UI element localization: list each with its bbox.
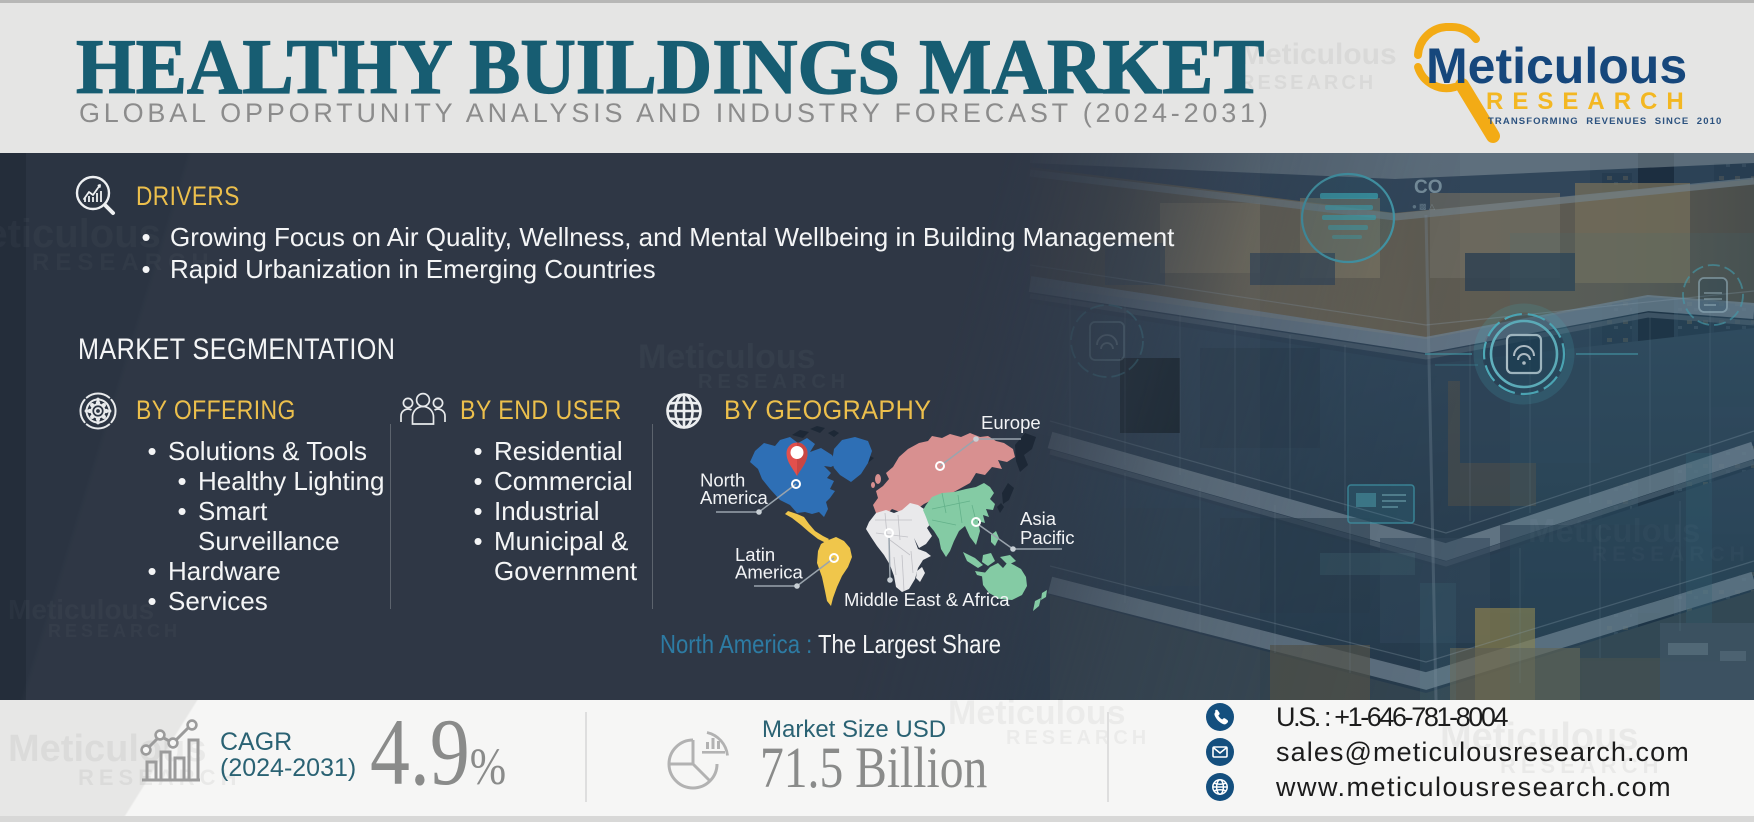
svg-text:America: America xyxy=(700,487,769,508)
svg-text:Pacific: Pacific xyxy=(1020,527,1075,548)
svg-text:Europe: Europe xyxy=(981,412,1041,433)
svg-text:Meticulous: Meticulous xyxy=(1426,38,1687,94)
svg-text:RESEARCH: RESEARCH xyxy=(1486,88,1693,115)
svg-text:Middle East & Africa: Middle East & Africa xyxy=(844,589,1010,610)
svg-text:America: America xyxy=(735,562,804,583)
svg-text:Asia: Asia xyxy=(1020,508,1057,529)
svg-text:TRANSFORMING REVENUES SINCE: TRANSFORMING REVENUES SINCE 2010 xyxy=(1488,116,1722,127)
